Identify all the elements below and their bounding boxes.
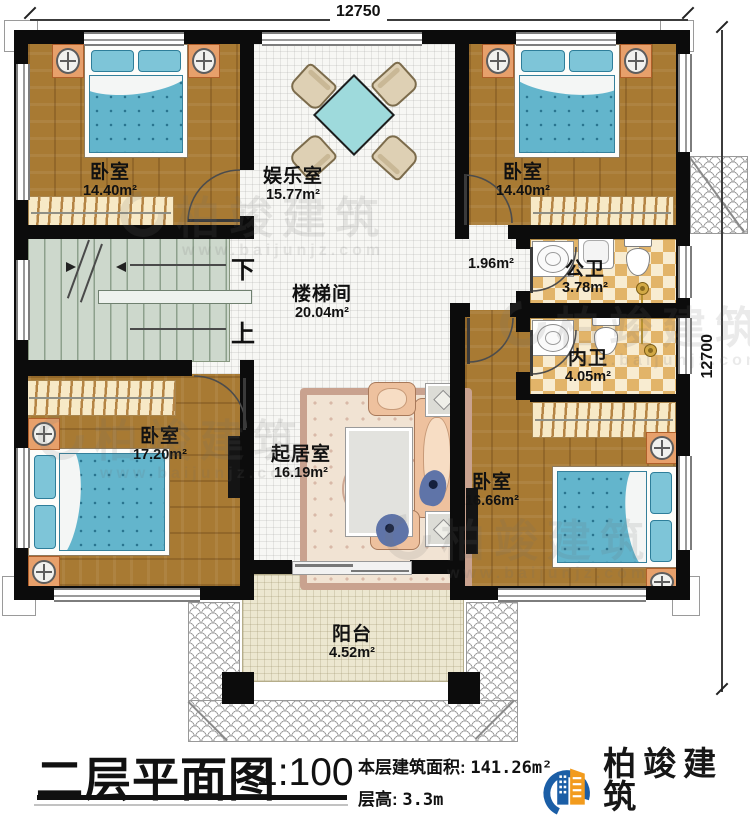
sofa-seat bbox=[368, 382, 416, 416]
stair-handrail bbox=[98, 290, 252, 304]
window bbox=[16, 260, 30, 340]
floor-drain-icon bbox=[636, 282, 649, 295]
wall bbox=[240, 360, 254, 376]
wall bbox=[530, 303, 676, 318]
lamp-icon bbox=[486, 48, 510, 74]
nightstand bbox=[188, 44, 220, 78]
toilet-icon bbox=[592, 314, 620, 356]
wall bbox=[530, 394, 676, 402]
mattress bbox=[89, 75, 183, 153]
tv-icon bbox=[466, 488, 478, 554]
floor-height-value: 3.3m bbox=[402, 790, 443, 810]
arrow-icon bbox=[116, 262, 126, 272]
window bbox=[678, 54, 692, 152]
floor-drain-icon bbox=[644, 344, 657, 357]
mattress bbox=[519, 75, 615, 153]
floor-height-label: 层高: bbox=[358, 790, 398, 809]
wall bbox=[450, 310, 465, 586]
nightstand bbox=[52, 44, 84, 78]
bed bbox=[84, 44, 188, 158]
bed bbox=[514, 44, 620, 158]
nightstand bbox=[482, 44, 514, 78]
company-logo-icon bbox=[540, 759, 595, 818]
lamp-icon bbox=[32, 422, 56, 446]
wall bbox=[508, 225, 676, 239]
nightstand bbox=[28, 418, 60, 450]
door-leaf bbox=[530, 330, 533, 376]
wall bbox=[14, 225, 254, 239]
window bbox=[678, 318, 692, 374]
door-arc bbox=[532, 247, 576, 291]
stair-flight-line bbox=[130, 328, 226, 330]
window bbox=[678, 456, 692, 550]
window bbox=[498, 588, 646, 602]
lamp-icon bbox=[650, 436, 674, 460]
pillow bbox=[138, 50, 181, 72]
dimension-right-value: 12700 bbox=[699, 328, 717, 385]
sheet-fold bbox=[89, 75, 183, 101]
company-name: 柏竣建筑 bbox=[603, 747, 750, 813]
floor-area-label: 本层建筑面积: bbox=[358, 758, 466, 777]
window bbox=[516, 32, 616, 46]
nightstand bbox=[28, 556, 60, 588]
lamp-icon bbox=[56, 48, 80, 74]
drain-pipe-line bbox=[641, 292, 643, 344]
bed bbox=[552, 466, 678, 568]
pillow bbox=[34, 505, 56, 549]
wall bbox=[510, 303, 530, 317]
wall bbox=[254, 560, 292, 574]
door-leaf bbox=[188, 219, 240, 222]
window bbox=[84, 32, 184, 46]
door-arc bbox=[464, 175, 512, 223]
plan-stats: 本层建筑面积: 141.26m² 层高: 3.3m bbox=[358, 752, 552, 817]
door-arc bbox=[194, 376, 246, 428]
toilet-icon bbox=[624, 235, 652, 275]
door-arc bbox=[188, 170, 240, 222]
wall bbox=[14, 360, 192, 376]
lamp-icon bbox=[192, 48, 216, 74]
pillow bbox=[521, 50, 565, 72]
door-leaf bbox=[467, 318, 470, 364]
sheet-fold bbox=[59, 453, 86, 551]
wall bbox=[516, 239, 530, 249]
wall bbox=[516, 372, 530, 400]
mattress bbox=[557, 471, 647, 563]
nightstand bbox=[646, 432, 678, 464]
window bbox=[262, 32, 422, 46]
balcony-sliding-door bbox=[292, 561, 412, 575]
arrow-icon bbox=[66, 262, 76, 272]
window bbox=[16, 448, 30, 548]
wall bbox=[240, 44, 254, 170]
stairs-up-label: 上 bbox=[231, 314, 255, 349]
title-underline-light bbox=[34, 804, 348, 806]
bed bbox=[28, 448, 170, 556]
wall bbox=[410, 560, 450, 574]
tv-icon bbox=[228, 436, 240, 498]
plan-scale: 1:100 bbox=[256, 751, 354, 795]
washer-icon bbox=[578, 235, 614, 269]
dimension-line-right bbox=[721, 30, 723, 692]
title-underline bbox=[37, 795, 347, 800]
door-leaf bbox=[243, 378, 246, 430]
roof-hatch bbox=[188, 700, 518, 742]
dimension-tick bbox=[682, 7, 695, 20]
nightstand bbox=[620, 44, 652, 78]
company-logo: 柏竣建筑 www.baijunjz.com bbox=[540, 747, 750, 818]
wardrobe bbox=[26, 380, 176, 416]
floor-plan-canvas: 12750 12700 bbox=[0, 0, 750, 818]
window bbox=[54, 588, 200, 602]
pillow bbox=[569, 50, 613, 72]
sheet-fold bbox=[620, 471, 647, 563]
balcony-column bbox=[448, 672, 480, 704]
stairs-down-label: 下 bbox=[231, 250, 255, 285]
mattress bbox=[59, 453, 165, 551]
door-leaf bbox=[530, 247, 533, 293]
sheet-fold bbox=[519, 75, 615, 100]
window bbox=[16, 64, 30, 200]
lamp-icon bbox=[32, 560, 56, 584]
pillow bbox=[91, 50, 134, 72]
pillow bbox=[34, 455, 56, 499]
door-arc bbox=[532, 330, 576, 374]
pillow bbox=[650, 472, 672, 514]
window bbox=[678, 246, 692, 298]
stair-flight-line bbox=[130, 264, 226, 266]
dimension-tick bbox=[24, 7, 37, 20]
door-arc bbox=[469, 318, 513, 362]
balcony-column bbox=[222, 672, 254, 704]
wall bbox=[450, 303, 470, 317]
dimension-top-value: 12750 bbox=[330, 3, 387, 21]
door-leaf bbox=[464, 175, 467, 225]
pillow bbox=[650, 520, 672, 562]
balcony-floor bbox=[242, 574, 464, 682]
lamp-icon bbox=[624, 48, 648, 74]
